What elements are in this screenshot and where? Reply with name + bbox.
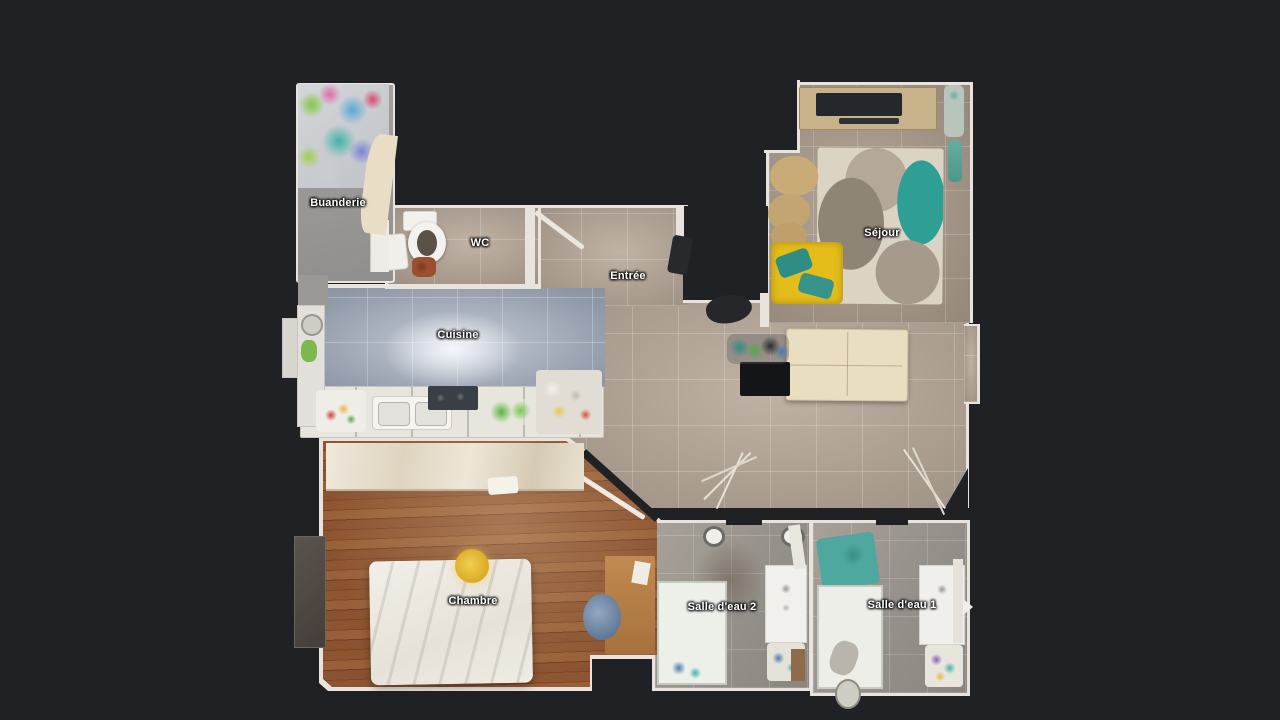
floor-connector (298, 275, 328, 309)
room-label-entree[interactable]: Entrée (610, 270, 645, 282)
stove (428, 386, 478, 410)
doorway-arrow-icon[interactable] (963, 599, 973, 615)
washer-drum (301, 314, 323, 336)
sofa-yellow (771, 242, 843, 304)
sink-basin (378, 402, 410, 426)
rug-circle-bottom (875, 240, 940, 305)
green-bottle (301, 340, 317, 362)
wardrobe (326, 443, 584, 491)
desk-chair (583, 594, 621, 640)
corridor-right-bump (964, 324, 980, 404)
yellow-basket (455, 549, 489, 583)
room-label-salle-deau-2[interactable]: Salle d'eau 2 (688, 601, 757, 613)
rug-circle-teal (897, 160, 944, 244)
shower-tray (657, 581, 727, 685)
room-label-wc[interactable]: WC (471, 237, 490, 249)
toiletry-clutter (925, 645, 963, 687)
toilet-seat-hole (417, 230, 437, 256)
bathroom-sink (765, 565, 807, 643)
room-label-chambre[interactable]: Chambre (448, 595, 497, 607)
dresser-dark (294, 536, 326, 648)
shower-head-below (835, 679, 861, 709)
floor-hole (740, 362, 790, 396)
plant-decor (944, 85, 964, 137)
grocery-basket (316, 390, 366, 432)
teal-decor (948, 140, 962, 182)
door-gap (876, 517, 908, 525)
wall-bathroom-top-gap (640, 508, 970, 520)
bag-pile (727, 334, 789, 364)
room-label-buanderie[interactable]: Buanderie (310, 197, 366, 209)
wood-panel (791, 649, 805, 681)
tv-flat (816, 93, 902, 116)
tv-soundbar (839, 118, 899, 124)
bed (369, 559, 533, 686)
wc-mat (412, 257, 436, 277)
wall-wc-entree (525, 205, 535, 287)
room-label-sejour[interactable]: Séjour (864, 227, 899, 239)
room-label-salle-deau-1[interactable]: Salle d'eau 1 (868, 599, 937, 611)
dish-pile (536, 370, 602, 434)
door-gap (726, 517, 762, 525)
teal-towel (816, 531, 881, 591)
sejour-corner-notch (764, 80, 800, 153)
sofa-cushion (797, 272, 835, 300)
unscanned-void (683, 206, 768, 303)
dining-table (786, 328, 909, 401)
wall-sofa-stub (760, 293, 769, 327)
floorplan-canvas[interactable]: Buanderie WC Entrée Séjour Cuisine Chamb… (0, 0, 1280, 720)
green-groceries (487, 399, 535, 425)
shelf (953, 559, 963, 643)
wall-cuisine-top (322, 284, 538, 288)
tv-console (799, 87, 937, 130)
room-label-cuisine[interactable]: Cuisine (437, 329, 478, 341)
pillow (487, 476, 518, 495)
